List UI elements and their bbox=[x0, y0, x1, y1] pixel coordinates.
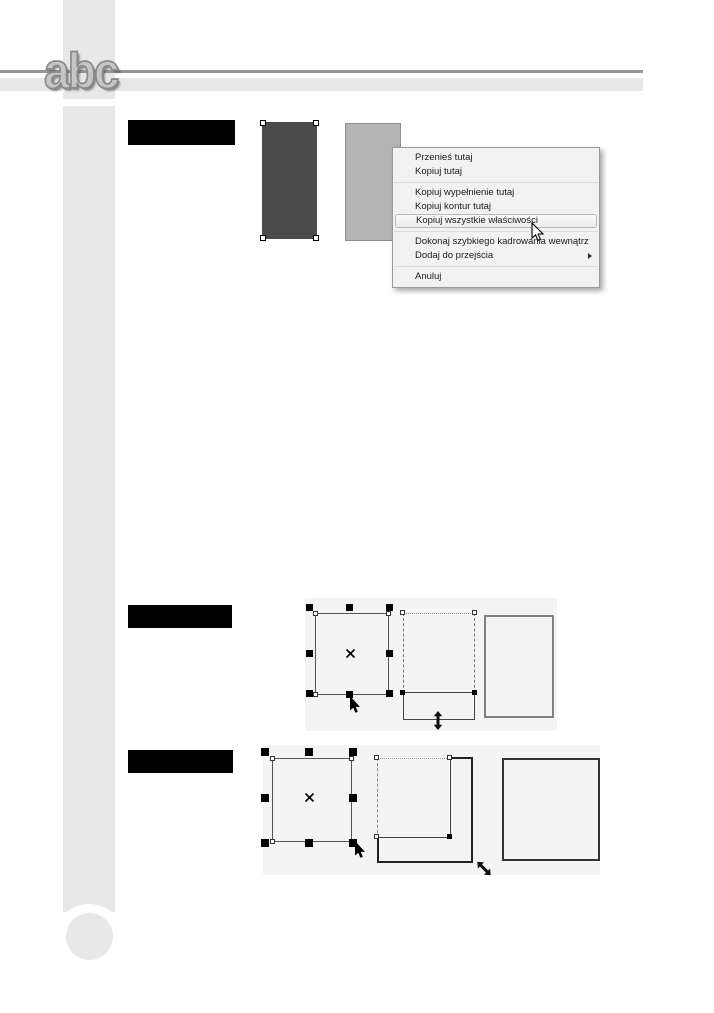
corner-node bbox=[472, 610, 477, 615]
corner-node bbox=[313, 120, 319, 126]
dark-rectangle[interactable] bbox=[262, 122, 317, 239]
figure-caption-redacted bbox=[128, 750, 233, 773]
corner-node bbox=[313, 235, 319, 241]
corner-node bbox=[270, 756, 275, 761]
marquee-square bbox=[403, 613, 475, 693]
corner-node bbox=[447, 834, 452, 839]
corner-node bbox=[374, 834, 379, 839]
cursor-arrow-icon bbox=[354, 841, 367, 860]
selection-handle bbox=[261, 794, 269, 802]
selection-handle bbox=[349, 794, 357, 802]
corner-node bbox=[260, 235, 266, 241]
selection-handle bbox=[386, 690, 393, 697]
menu-item-label: Dodaj do przejścia bbox=[415, 250, 493, 261]
menu-item-move-here[interactable]: Przenieś tutaj bbox=[393, 151, 599, 165]
margin-dot bbox=[66, 913, 113, 960]
selection-handle bbox=[306, 650, 313, 657]
marquee-square bbox=[377, 758, 451, 838]
selection-handle bbox=[306, 604, 313, 611]
context-menu: Przenieś tutaj Kopiuj tutaj Kopiuj wypeł… bbox=[392, 147, 600, 288]
scaled-outline bbox=[377, 837, 379, 863]
center-x-icon bbox=[345, 648, 356, 659]
corner-node bbox=[270, 839, 275, 844]
margin-strip bbox=[63, 106, 115, 912]
selection-handle bbox=[346, 604, 353, 611]
menu-separator bbox=[394, 231, 598, 232]
menu-item-cancel[interactable]: Anuluj bbox=[393, 270, 599, 284]
selection-handle bbox=[306, 690, 313, 697]
scaled-outline bbox=[471, 757, 473, 863]
submenu-arrow-icon bbox=[588, 253, 592, 259]
menu-item-copy-all-properties[interactable]: Kopiuj wszystkie właściwości bbox=[395, 214, 597, 228]
corner-node bbox=[400, 690, 405, 695]
vertical-resize-icon bbox=[433, 711, 443, 730]
menu-item-copy-fill-here[interactable]: Kopiuj wypełnienie tutaj bbox=[393, 186, 599, 200]
menu-item-copy-here[interactable]: Kopiuj tutaj bbox=[393, 165, 599, 179]
corner-node bbox=[313, 692, 318, 697]
menu-item-add-to-blend[interactable]: Dodaj do przejścia bbox=[393, 249, 599, 263]
corner-node bbox=[472, 690, 477, 695]
menu-separator bbox=[394, 182, 598, 183]
figure-caption-redacted bbox=[128, 120, 235, 145]
book-page: abc Przenieś tutaj Kopiuj tutaj Kopiuj w… bbox=[0, 0, 714, 1013]
corner-node bbox=[260, 120, 266, 126]
corner-node bbox=[386, 611, 391, 616]
scaled-outline bbox=[450, 757, 473, 759]
selection-handle bbox=[305, 748, 313, 756]
selection-handle bbox=[386, 650, 393, 657]
corner-node bbox=[349, 756, 354, 761]
menu-separator bbox=[394, 266, 598, 267]
menu-item-copy-outline-here[interactable]: Kopiuj kontur tutaj bbox=[393, 200, 599, 214]
scaled-outline bbox=[377, 861, 473, 863]
selection-handle bbox=[305, 839, 313, 847]
selection-handle bbox=[261, 748, 269, 756]
selection-handle bbox=[261, 839, 269, 847]
result-rectangle bbox=[484, 615, 554, 718]
result-rectangle bbox=[502, 758, 600, 861]
cursor-arrow-icon bbox=[531, 222, 545, 243]
cursor-arrow-icon bbox=[349, 696, 362, 715]
figure-caption-redacted bbox=[128, 605, 232, 628]
abc-logo: abc bbox=[44, 46, 118, 96]
corner-node bbox=[447, 755, 452, 760]
corner-node bbox=[374, 755, 379, 760]
center-x-icon bbox=[304, 792, 315, 803]
menu-item-powerclip-inside[interactable]: Dokonaj szybkiego kadrowania wewnątrz bbox=[393, 235, 599, 249]
selection-handle bbox=[349, 748, 357, 756]
corner-node bbox=[400, 610, 405, 615]
corner-node bbox=[313, 611, 318, 616]
selection-handle bbox=[386, 604, 393, 611]
